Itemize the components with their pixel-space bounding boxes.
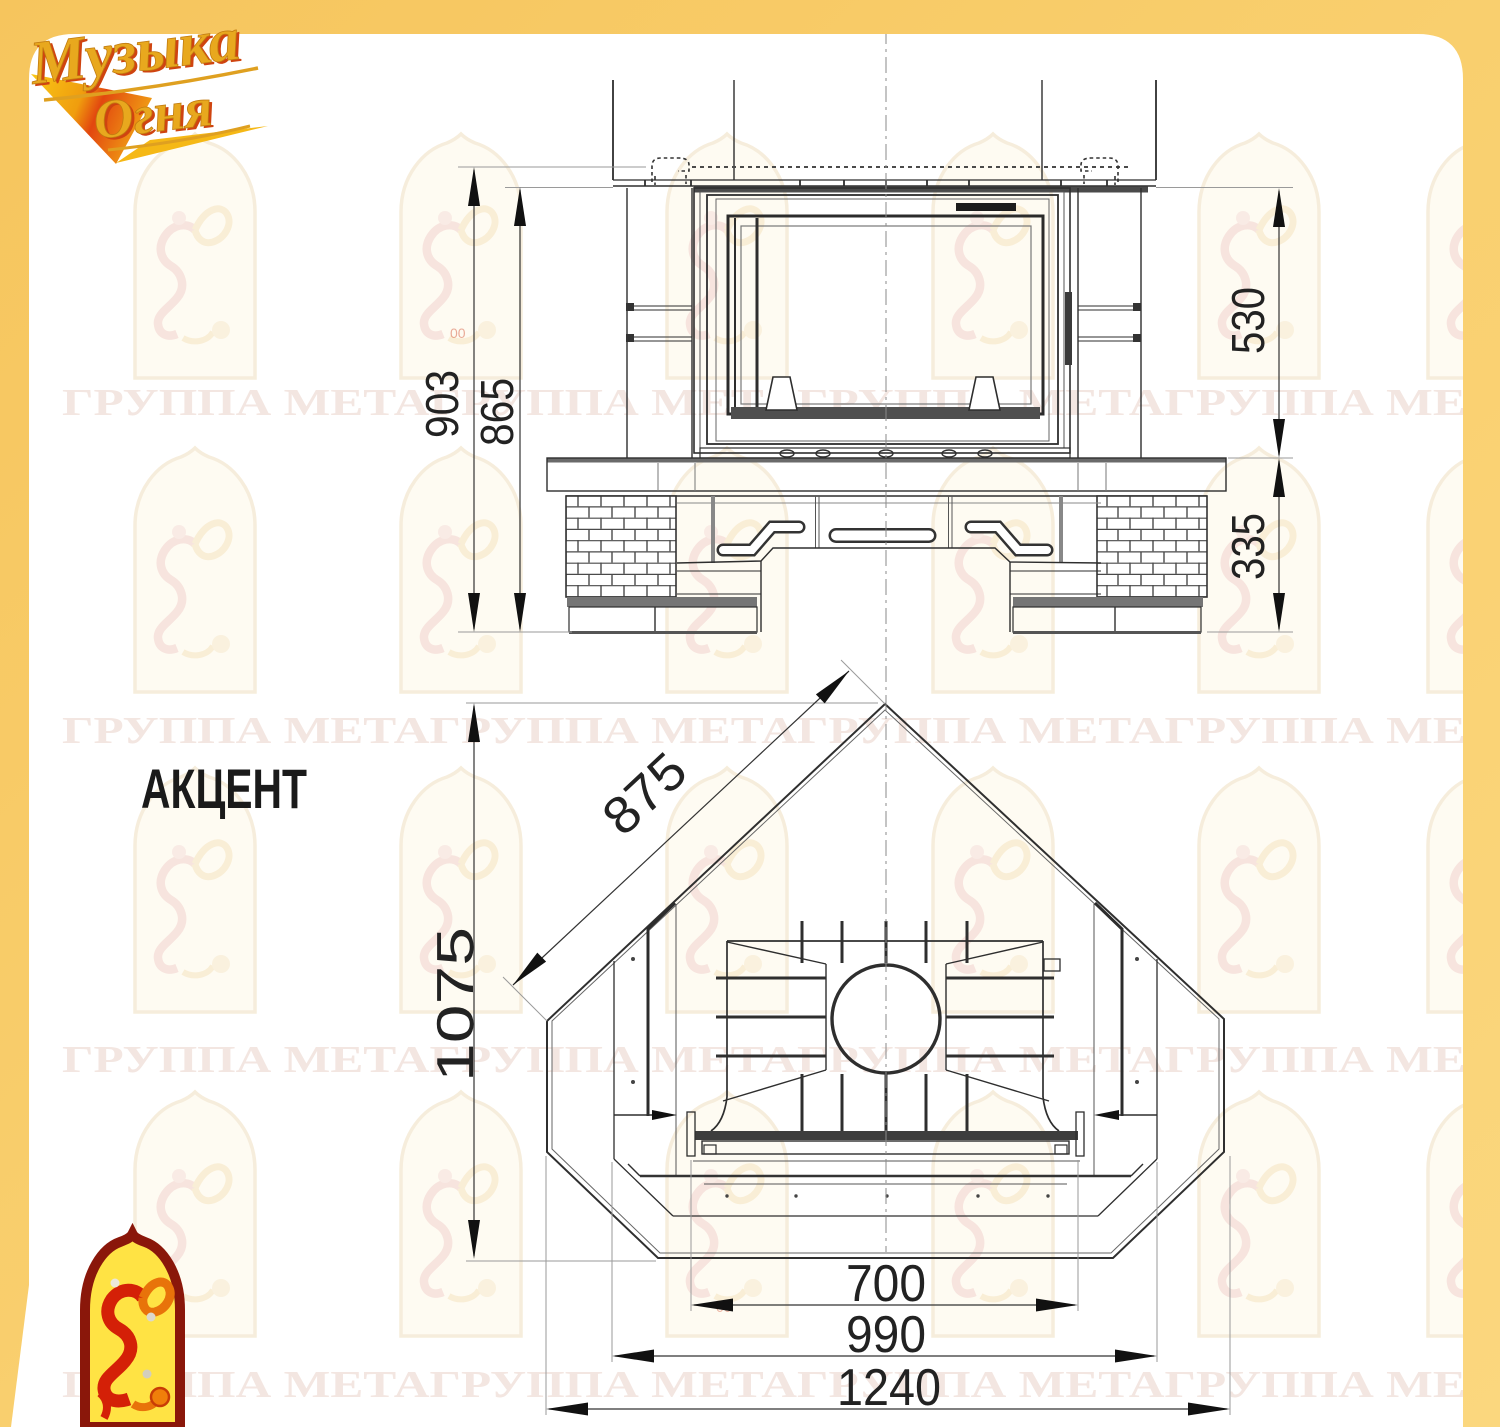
svg-text:990: 990 bbox=[846, 1306, 926, 1364]
svg-text:АКЦЕНТ: АКЦЕНТ bbox=[141, 757, 307, 820]
svg-text:00: 00 bbox=[450, 325, 466, 341]
svg-text:530: 530 bbox=[1222, 287, 1274, 354]
svg-text:700: 700 bbox=[846, 1255, 926, 1313]
svg-text:1075: 1075 bbox=[427, 927, 485, 1082]
svg-text:903: 903 bbox=[416, 370, 468, 438]
svg-text:ГРУППА МЕТАГРУППА МЕТАГРУППА М: ГРУППА МЕТАГРУППА МЕТАГРУППА МЕТАГРУППА … bbox=[62, 710, 1500, 752]
svg-text:335: 335 bbox=[1222, 513, 1274, 580]
svg-text:ГРУППА МЕТАГРУППА МЕТАГРУППА М: ГРУППА МЕТАГРУППА МЕТАГРУППА МЕТАГРУППА … bbox=[62, 1364, 1500, 1406]
svg-text:865: 865 bbox=[471, 378, 523, 446]
svg-text:ГРУППА МЕТАГРУППА МЕТАГРУППА М: ГРУППА МЕТАГРУППА МЕТАГРУППА МЕТАГРУППА … bbox=[62, 1039, 1500, 1081]
svg-text:1240: 1240 bbox=[837, 1359, 941, 1417]
